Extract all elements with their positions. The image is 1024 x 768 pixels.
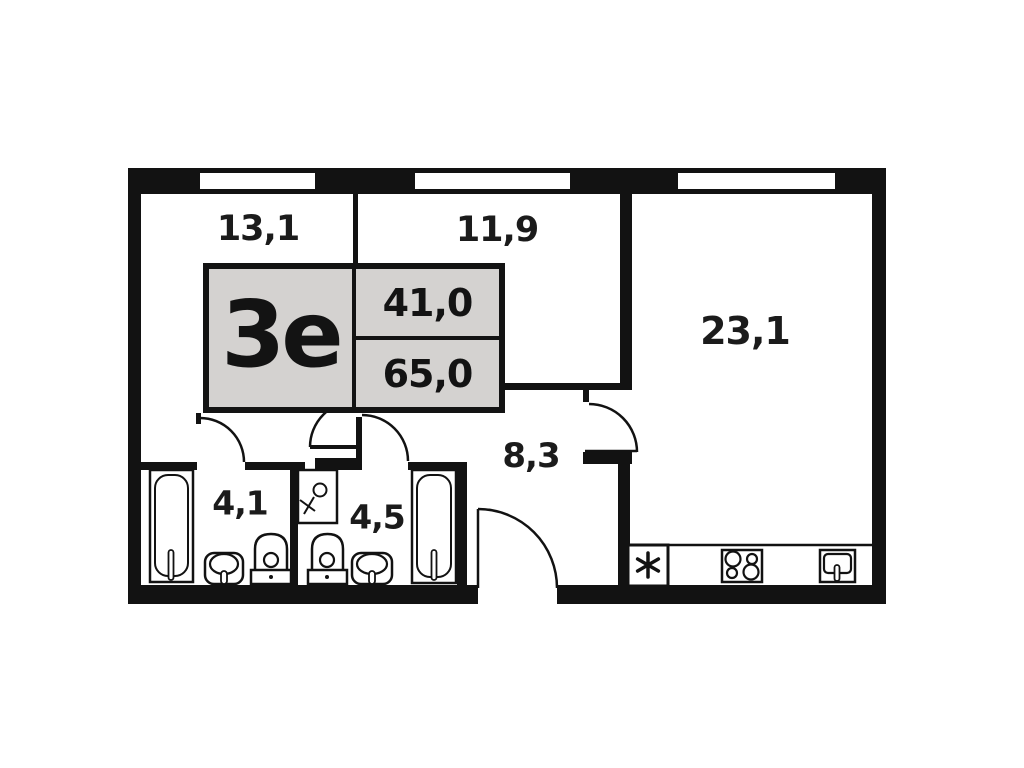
window-icon xyxy=(678,173,835,189)
wall-nook-partition xyxy=(310,445,356,449)
stamp-plan-code: 3е xyxy=(221,289,339,387)
window-icon xyxy=(200,173,315,189)
asterisk-appliance-icon xyxy=(628,545,668,586)
kitchen-sink-icon xyxy=(820,550,855,582)
bathtub-icon xyxy=(412,470,456,583)
wall-11-9-bottom xyxy=(503,383,632,390)
room-label-4-5: 4,5 xyxy=(349,498,404,537)
door-arc-icon xyxy=(200,418,244,462)
room-label-8-3: 8,3 xyxy=(502,436,559,476)
toilet-icon xyxy=(308,534,347,584)
stamp-code-cell: 3е xyxy=(209,269,356,407)
stamp-area-lower: 65,0 xyxy=(356,340,499,407)
door-leaf xyxy=(356,417,362,458)
floor-plan-drawing xyxy=(0,0,1024,768)
room-label-13-1: 13,1 xyxy=(217,209,299,249)
wall-left xyxy=(128,168,141,604)
stamp-values: 41,0 65,0 xyxy=(356,269,499,407)
toilet-icon xyxy=(251,534,291,584)
window-icon xyxy=(415,173,570,189)
door-jamb xyxy=(583,390,589,402)
sink-icon xyxy=(205,553,243,584)
bathtub-icon xyxy=(150,470,193,582)
door-arc-icon xyxy=(478,509,557,588)
wall-bath-top-c xyxy=(315,458,362,470)
washing-machine-icon xyxy=(298,470,337,523)
room-label-4-1: 4,1 xyxy=(212,484,267,523)
wall-bath-right xyxy=(457,462,467,585)
plan-stamp: 3е 41,0 65,0 xyxy=(203,263,505,413)
wall-between-11-9-and-23-1 xyxy=(620,194,632,390)
stamp-area-upper: 41,0 xyxy=(356,269,499,340)
room-label-11-9: 11,9 xyxy=(456,210,538,250)
wall-between-13-1-and-11-9 xyxy=(353,194,358,267)
floor-plan: 3е 41,0 65,0 13,1 11,9 23,1 8,3 4,1 4,5 xyxy=(0,0,1024,768)
wall-bottom-left xyxy=(128,585,478,604)
room-label-23-1: 23,1 xyxy=(700,309,790,353)
sink-icon xyxy=(352,553,392,584)
stove-icon xyxy=(722,550,762,582)
door-arc-icon xyxy=(362,415,408,461)
wall-right xyxy=(872,168,886,604)
wall-bottom-right xyxy=(557,585,886,604)
door-arc-icon xyxy=(589,404,637,452)
